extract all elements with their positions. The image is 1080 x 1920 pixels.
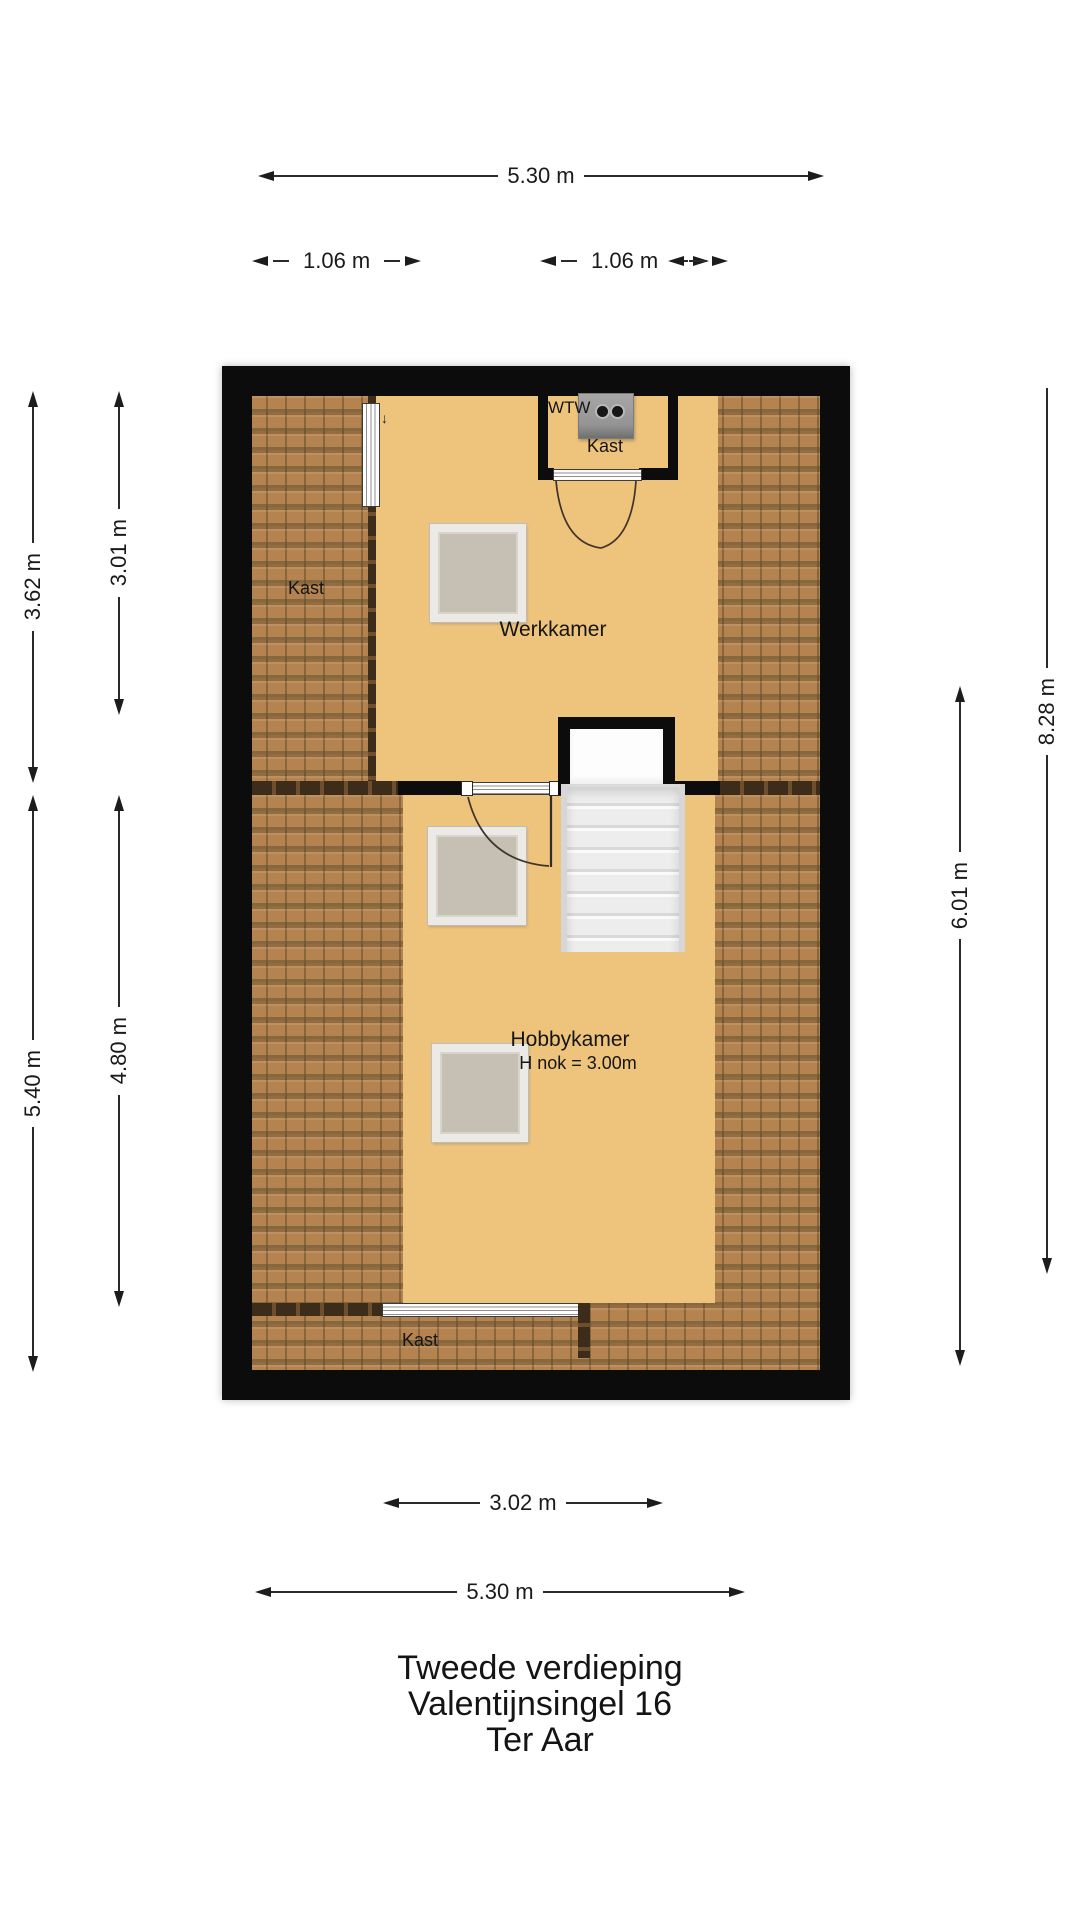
plan-title: Tweede verdieping Valentijnsingel 16 Ter… <box>0 1650 1080 1758</box>
door-swing-overlay <box>0 0 1080 1920</box>
title-address: Valentijnsingel 16 <box>0 1686 1080 1722</box>
floorplan-page: 5.30 m 1.06 m 1.06 m 3.62 m 3.01 m <box>0 0 1080 1920</box>
title-city: Ter Aar <box>0 1722 1080 1758</box>
title-floor: Tweede verdieping <box>0 1650 1080 1686</box>
